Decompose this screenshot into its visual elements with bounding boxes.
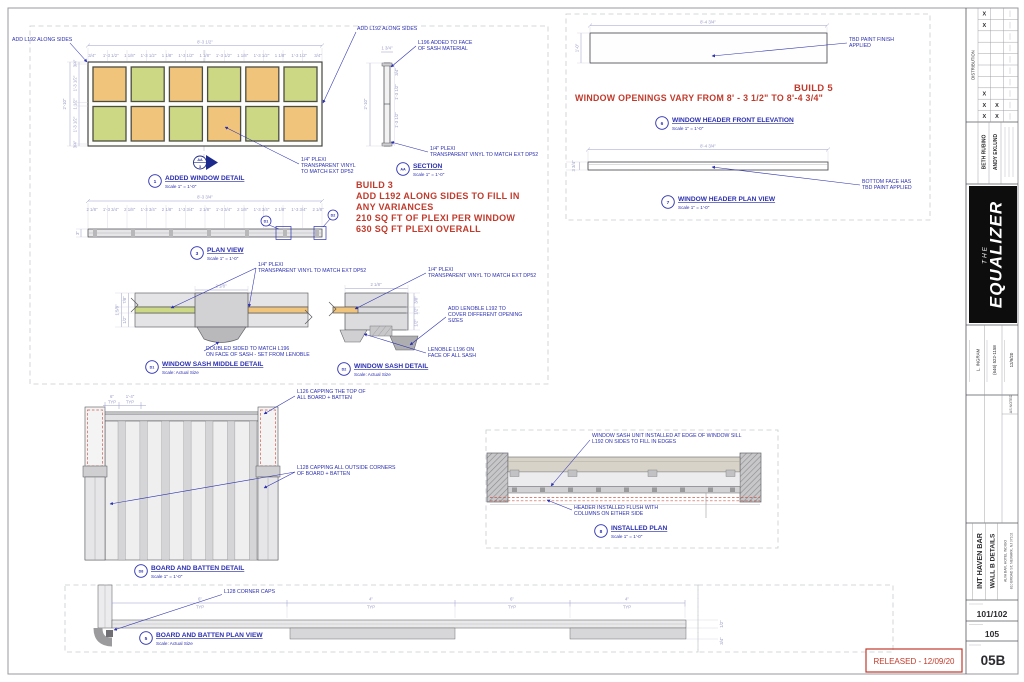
dim-label: TYP	[196, 605, 204, 610]
build5-note: WINDOW OPENINGS VARY FROM 8' - 3 1/2" TO…	[575, 93, 823, 103]
dim-label: 3/4"	[394, 68, 399, 76]
dim-label: 1/2"	[122, 316, 127, 324]
dim-label: 2 1/8"	[275, 207, 287, 212]
detail-title: PLAN VIEW	[207, 247, 244, 254]
build3-line: ANY VARIANCES	[356, 202, 434, 212]
detail-number: 5	[145, 636, 148, 642]
dim-label: 3/4"	[719, 637, 724, 645]
dim-label: 1'-3 1/2"	[216, 53, 232, 58]
detail-plan-view: 8'-3 3/4" 2 1/8" 1'-3 3/4" 2 1/8" 1'-3 3…	[75, 195, 338, 262]
x-mark: X	[995, 114, 999, 120]
x-mark: X	[982, 12, 986, 18]
window-pane	[208, 107, 241, 142]
dim-label: 1 1/8"	[199, 53, 211, 58]
detail-sash-middle: 2 1/8" 1 5/8" 7/8" 1/2" 1/4" PLEXI TRANS…	[115, 262, 367, 375]
dim-label: 1/2"	[719, 620, 724, 628]
note-l196-face: OF SASH MATERIAL	[418, 46, 468, 52]
show-title: INT HAVEN BAR	[975, 532, 984, 589]
dim-label: 1'-3 1/2"	[141, 53, 157, 58]
detail-header-front: 8'-4 3/4" 1'-0" TBD PAINT FINISH APPLIED…	[575, 20, 895, 132]
dim-label: 1'-3 3/4"	[216, 207, 232, 212]
scale-area: AS NOTED	[985, 394, 1019, 523]
dim-label: 1'-3 1/2"	[178, 53, 194, 58]
crew-name: BETH RUBINO	[982, 135, 988, 170]
note-bottom-face: TBD PAINT APPLIED	[862, 185, 912, 191]
detail-scale: Scale 1" = 1'-0"	[165, 184, 197, 189]
detail-scale: Scale 1" = 1'-0"	[207, 256, 239, 261]
detail-header-plan: 8'-4 3/4" 3 3/4" BOTTOM FACE HAS TBD PAI…	[566, 144, 912, 211]
contact-fields: L. INGRAM (646) 522-1158 12/9/20	[970, 325, 1015, 395]
dim-label: 3/4"	[73, 59, 78, 67]
dim-label: 3/4"	[314, 53, 322, 58]
window-pane	[246, 107, 279, 142]
dim-label: 6"	[110, 394, 114, 399]
window-pane	[284, 107, 317, 142]
detail-number: 1	[154, 179, 157, 185]
dim-label: TYP	[126, 400, 134, 405]
detail-scale: Scale: Actual Size	[354, 372, 391, 377]
note-header-flush: COLUMNS ON EITHER SIDE	[574, 511, 644, 517]
dim-label: 1'-3 3/4"	[141, 207, 157, 212]
contact-value: L. INGRAM	[976, 348, 981, 371]
dim-label: 1'-3 1/2"	[73, 75, 78, 91]
distribution-label: DISTRIBUTION	[971, 50, 976, 80]
window-pane	[246, 67, 279, 102]
detail-sash: 2 1/8" 3/8" 1/2" 1/2" 1/4" PLEXI TRANSPA…	[329, 267, 536, 377]
sheet-code: 05B	[981, 653, 1006, 668]
detail-number: 8	[600, 529, 603, 535]
dim-label: 1'-3 1/2"	[291, 53, 307, 58]
drawing-sheet: 8'-3 1/2" 3/4" 1'-3 1/2" 1 1/8" 1'-3 1/2…	[0, 0, 1024, 682]
detail-number: 3	[196, 251, 199, 257]
window-pane	[131, 67, 164, 102]
detail-scale: Scale 1" = 1'-0"	[151, 574, 183, 579]
dim-label: 2'-10"	[62, 98, 67, 109]
detail-added-window: 8'-3 1/2" 3/4" 1'-3 1/2" 1 1/8" 1'-3 1/2…	[12, 26, 418, 189]
note-add-l192-left: ADD L192 ALONG SIDES	[12, 37, 73, 43]
note-lenoble-cover: SIZES	[448, 318, 464, 324]
detail-title: BOARD AND BATTEN PLAN VIEW	[156, 632, 263, 639]
dim-label: 1'-4"	[126, 394, 135, 399]
detail-number: 6	[661, 121, 664, 127]
build3-line: ADD L192 ALONG SIDES TO FILL IN	[356, 191, 520, 201]
detail-title: SECTION	[413, 163, 443, 170]
venue-address: 810 BROAD ST, NEWARK, NJ 07102	[1010, 533, 1014, 590]
detail-title: INSTALLED PLAN	[611, 525, 668, 532]
contact-value: 12/9/20	[1009, 352, 1014, 367]
window-pane	[131, 107, 164, 142]
dim-label: 1 1/8"	[162, 53, 174, 58]
x-mark: X	[982, 103, 986, 109]
dim-label: 2 1/8"	[86, 207, 98, 212]
dim-label: 1/2"	[414, 319, 419, 327]
dim-label: TYP	[508, 605, 516, 610]
note-tbd-paint: APPLIED	[849, 43, 871, 49]
title-block: DISTRIBUTION X X X X X X X BETH RUBINO A…	[966, 8, 1018, 674]
detail-number: D8	[139, 570, 144, 574]
dim-label: 1'-3 3/4"	[291, 207, 307, 212]
dim-label: 8'-4 3/4"	[700, 144, 716, 149]
contact-value: (646) 522-1158	[992, 345, 997, 375]
window-pane	[169, 67, 202, 102]
dim-label: 1'-3 1/2"	[394, 84, 399, 100]
dim-label: 8'-3 1/2"	[197, 40, 213, 45]
callout-d1-label: D1	[264, 220, 269, 224]
window-pane	[169, 107, 202, 142]
dim-label: 2 1/8"	[162, 207, 174, 212]
dim-label: 2 1/8"	[124, 207, 136, 212]
detail-scale: Scale 1" = 1'-0"	[678, 205, 710, 210]
dim-label: 6"	[510, 597, 514, 602]
dim-label: 3"	[75, 231, 80, 235]
show-logo: THE EQUALIZER	[969, 186, 1017, 323]
note-l128-caps: L128 CORNER CAPS	[224, 589, 276, 595]
sheet-canvas: 8'-3 1/2" 3/4" 1'-3 1/2" 1 1/8" 1'-3 1/2…	[0, 0, 1024, 682]
note-plexi-window: TO MATCH EXT DP52	[301, 169, 354, 175]
detail-section-aa: 1 3/4" 2'-10" 3/4" 1'-3 1/2" 1'-3 1/2" L…	[363, 40, 538, 177]
detail-scale: Scale: Actual Size	[162, 370, 199, 375]
dim-label: 2 1/8"	[312, 207, 324, 212]
build3-note: BUILD 3 ADD L192 ALONG SIDES TO FILL IN …	[356, 180, 520, 234]
dim-label: 4"	[369, 597, 373, 602]
build3-line: 210 SQ FT OF PLEXI PER WINDOW	[356, 213, 515, 223]
dim-label: 4"	[625, 597, 629, 602]
sheet-numbers: 101/102 105 05B	[969, 604, 1008, 668]
dim-label: 1'-0"	[575, 43, 580, 52]
build3-line: 630 SQ FT PLEXI OVERALL	[356, 224, 481, 234]
detail-scale: Scale 1" = 1'-0"	[413, 172, 445, 177]
detail-bnb-plan: 6" TYP 4" TYP 6" TYP 4" TYP 1/2" 3/4" L1…	[98, 585, 724, 646]
callout-d2-label: D2	[331, 214, 336, 218]
dim-label: 1/2"	[414, 307, 419, 315]
detail-title: WINDOW SASH MIDDLE DETAIL	[162, 361, 263, 368]
detail-number: D2	[342, 368, 347, 372]
distribution-grid: DISTRIBUTION X X X X X X X	[971, 8, 1019, 122]
set-number: 101/102	[977, 609, 1008, 619]
dim-label: 7/8"	[122, 296, 127, 304]
dim-label: 3 3/4"	[571, 160, 576, 172]
project-titles: INT HAVEN BAR WALL B DETAILS ALVA BAR, H…	[973, 523, 1014, 600]
note-plexi-d2: TRANSPARENT VINYL TO MATCH EXT DP52	[428, 273, 536, 279]
dim-label: TYP	[367, 605, 375, 610]
detail-installed-plan: WINDOW SASH UNIT INSTALLED AT EDGE OF WI…	[487, 433, 761, 539]
dim-label: 2 1/8"	[237, 207, 249, 212]
dim-label: 2 1/8"	[199, 207, 211, 212]
note-l128-outside: OF BOARD + BATTEN	[297, 471, 350, 477]
note-sash-unit: L192 ON SIDES TO FILL IN EDGES	[592, 439, 677, 445]
detail-scale: Scale: Actual Size	[156, 641, 193, 646]
x-mark: X	[982, 114, 986, 120]
dim-label: 1 3/4"	[381, 46, 393, 51]
dim-label: 1 1/2"	[73, 98, 78, 110]
dim-label: 1 5/8"	[115, 304, 120, 316]
dim-label: 3/8"	[414, 296, 419, 304]
released-stamp: RELEASED - 12/09/20	[866, 649, 962, 672]
window-pane	[93, 67, 126, 102]
dim-label: 1 1/8"	[237, 53, 249, 58]
sheet-title: WALL B DETAILS	[990, 533, 997, 588]
note-plexi-section: TRANSPARENT VINYL TO MATCH EXT DP52	[430, 152, 538, 158]
dim-label: 8'-3 3/4"	[197, 195, 213, 200]
dim-label: TYP	[623, 605, 631, 610]
detail-scale: Scale 1" = 1'-0"	[611, 534, 643, 539]
window-pane	[208, 67, 241, 102]
detail-title: WINDOW SASH DETAIL	[354, 363, 428, 370]
window-pane	[93, 107, 126, 142]
note-doubled: ON FACE OF SASH - SET FROM LENOBLE	[206, 352, 310, 358]
build3-line: BUILD 3	[356, 180, 393, 190]
dim-label: 2'-10"	[363, 98, 368, 109]
dim-label: 1'-3 1/2"	[394, 112, 399, 128]
detail-title: WINDOW HEADER FRONT ELEVATION	[672, 117, 794, 124]
detail-number: AA	[400, 168, 406, 172]
note-plexi-d1: TRANSPARENT VINYL TO MATCH EXT DP52	[258, 268, 366, 274]
detail-number: D1	[150, 366, 155, 370]
dim-label: 2 1/8"	[370, 282, 382, 287]
sheet-number: 105	[985, 629, 999, 639]
dim-label: 6"	[198, 597, 202, 602]
section-marker-top: AA	[197, 158, 203, 162]
detail-number: 7	[667, 200, 670, 206]
note-lenoble-face: FACE OF ALL SASH	[428, 353, 476, 359]
x-mark: X	[982, 23, 986, 29]
dim-label: TYP	[108, 400, 116, 405]
dim-label: 3/4"	[88, 53, 96, 58]
detail-title: WINDOW HEADER PLAN VIEW	[678, 196, 776, 203]
dim-label: 1'-3 1/2"	[73, 116, 78, 132]
dim-label: 1'-3 3/4"	[254, 207, 270, 212]
note-l126: ALL BOARD + BATTEN	[297, 395, 352, 401]
dim-label: 1'-3 1/2"	[103, 53, 119, 58]
x-mark: X	[982, 91, 986, 97]
dim-label: 8'-4 3/4"	[700, 20, 716, 25]
dim-label: 1 1/8"	[124, 53, 136, 58]
detail-scale: Scale 1" = 1'-0"	[672, 126, 704, 131]
crew-name: ANDY EKLUND	[993, 133, 999, 170]
detail-title: BOARD AND BATTEN DETAIL	[151, 565, 244, 572]
section-cut-marker: AA 3	[194, 155, 219, 170]
section-marker-bottom: 3	[199, 165, 201, 169]
released-text: RELEASED - 12/09/20	[874, 657, 955, 666]
scale-note: AS NOTED	[1009, 394, 1013, 413]
dim-label: 1'-3 3/4"	[178, 207, 194, 212]
window-pane	[284, 67, 317, 102]
note-add-l192-right: ADD L192 ALONG SIDES	[357, 26, 418, 32]
logo-name: EQUALIZER	[987, 201, 1006, 308]
dim-label: 1 1/8"	[275, 53, 287, 58]
detail-title: ADDED WINDOW DETAIL	[165, 175, 244, 182]
dim-label: 1'-3 1/2"	[254, 53, 270, 58]
x-mark: X	[995, 103, 999, 109]
detail-board-batten: 6" TYP 1'-4" TYP L126 CAPPING THE TOP OF…	[83, 389, 396, 579]
crew-names: BETH RUBINO ANDY EKLUND	[978, 122, 1013, 184]
dim-label: 3/4"	[73, 140, 78, 148]
dim-label: 1'-3 3/4"	[103, 207, 119, 212]
venue-address: ALVA BAR, HOTEL INDIGO	[1004, 540, 1008, 582]
